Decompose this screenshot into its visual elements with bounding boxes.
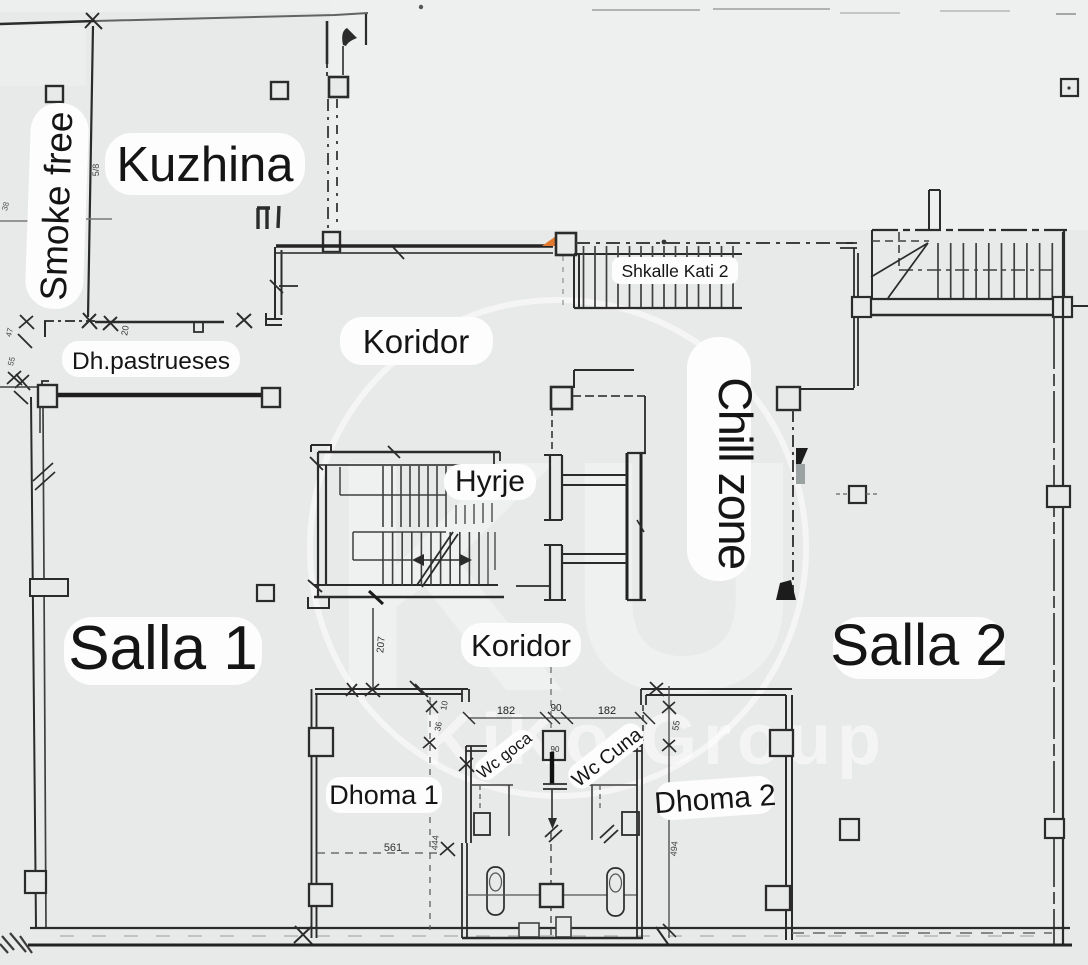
svg-text:Salla 2: Salla 2 <box>830 613 1007 678</box>
svg-text:55: 55 <box>670 720 682 732</box>
svg-text:5/8: 5/8 <box>91 164 101 177</box>
svg-text:Chill zone: Chill zone <box>709 377 762 569</box>
svg-text:90: 90 <box>551 745 560 754</box>
svg-text:Dh.pastrueses: Dh.pastrueses <box>72 348 230 375</box>
svg-text:20: 20 <box>119 325 131 337</box>
svg-text:207: 207 <box>375 636 387 654</box>
svg-text:182: 182 <box>598 705 616 717</box>
svg-text:Salla 1: Salla 1 <box>68 614 258 683</box>
svg-text:Koridor: Koridor <box>363 323 469 360</box>
svg-text:Smoke free: Smoke free <box>33 111 81 302</box>
svg-text:Kuzhina: Kuzhina <box>116 138 294 192</box>
svg-text:Hyrje: Hyrje <box>455 465 525 498</box>
svg-text:Shkalle Kati 2: Shkalle Kati 2 <box>621 261 728 281</box>
svg-text:182: 182 <box>497 705 515 717</box>
svg-text:10: 10 <box>438 700 450 711</box>
svg-text:Koridor: Koridor <box>471 628 571 663</box>
svg-text:36: 36 <box>432 721 444 732</box>
svg-text:444: 444 <box>429 835 440 851</box>
svg-text:Dhoma 1: Dhoma 1 <box>329 780 439 810</box>
svg-text:90: 90 <box>550 703 562 714</box>
svg-text:561: 561 <box>384 842 402 854</box>
svg-text:494: 494 <box>668 841 679 857</box>
